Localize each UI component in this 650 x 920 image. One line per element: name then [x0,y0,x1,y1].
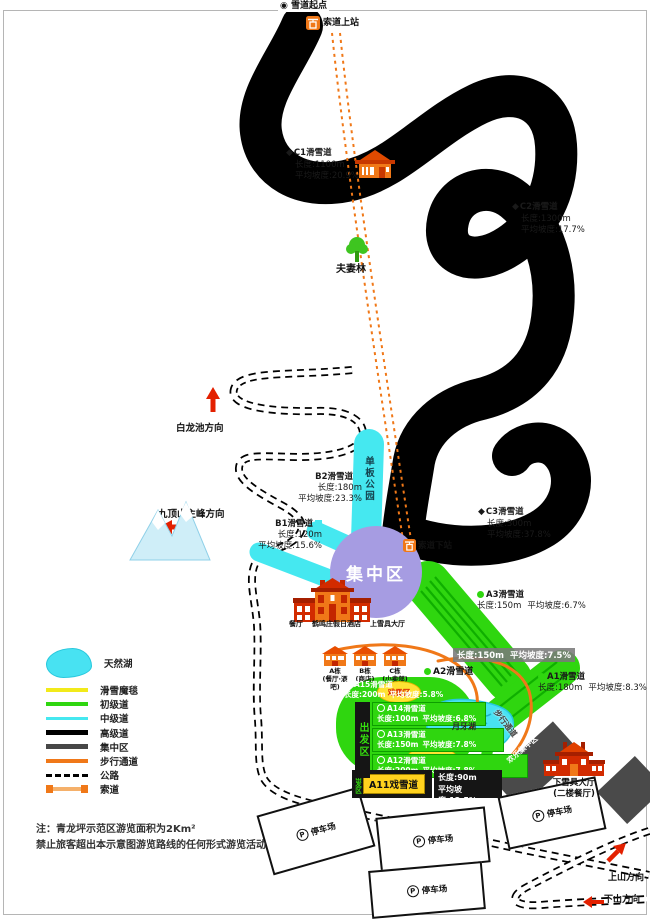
hub-swatch-icon [46,744,88,749]
legend-row: 初级道 [46,700,138,708]
arrow-up-icon [206,387,220,412]
hotel-label: 鹤鸣庄假日酒店 [312,619,361,629]
legend-row: 公路 [46,771,138,779]
departure-zone-bar: 出发区 [355,702,370,778]
legend-lake-row: 天然湖 [46,648,138,678]
intermediate-swatch-icon [46,717,88,721]
hotel-building-icon [293,576,371,622]
beginner-swatch-icon [46,702,88,706]
ropeway-swatch-icon [46,787,88,791]
parking-p-icon: P [295,828,310,843]
trail-a2-label: A2滑雪道 [424,667,473,678]
restaurant-label: 餐厅 [289,619,303,629]
lower-gear-hall-icon [543,740,605,778]
diamond-marker-icon: ◆ [478,507,485,517]
couple-forest-label: 夫妻林 [336,264,366,277]
legend-row: 中级道 [46,714,138,722]
legend-row: 步行通道 [46,757,138,765]
magic-carpet-swatch-icon [46,688,88,692]
lake-swatch-icon [46,648,92,678]
ring-marker-icon [377,730,385,738]
ring-marker-icon [377,704,385,712]
trail-a11-info-box: 长度:90m 平均坡度:12.5% [434,770,502,798]
trail-b2-label: B2滑雪道 长度:180m 平均坡度:23.3% [296,472,362,505]
advanced-swatch-icon [46,730,88,735]
ropeway-top-label: 索道上站 [323,18,359,29]
trail-a11-name-bar: A11戏雪道 [363,774,425,794]
walkway-swatch-icon [46,759,88,763]
legend-row: 滑雪魔毯 [46,686,138,694]
parking-p-icon: P [412,835,425,848]
map-notes: 注：青龙坪示范区游览面积为2Km² 禁止旅客超出本示意图游览路线的任何形式游览活… [36,822,266,853]
start-dot-icon: ◉ [280,1,291,11]
trail-a3-label: A3滑雪道 长度:150m平均坡度:6.7% [477,590,586,612]
legend-row: 集中区 [46,743,138,751]
mountain-icon [128,492,212,562]
parking-p-icon: P [531,809,545,823]
parking-p-icon: P [406,885,419,898]
block-c-house-icon [382,646,408,666]
ring-marker-icon [344,680,352,688]
mountain-house-icon [355,148,395,180]
right-hub-band [612,772,650,808]
green-dot-marker-icon [538,673,545,680]
downhill-label: 下山方向 [604,895,640,906]
green-dot-marker-icon [477,591,484,598]
block-a-house-icon [322,646,348,666]
upper-gear-hall-label: 上雪具大厅 [370,619,405,629]
crescent-lake-label: 月牙湖 [452,722,476,732]
advanced-trail [260,26,571,546]
ring-marker-icon [377,756,385,764]
snowboard-park-label: 单板公园 [361,456,375,502]
map-legend: 天然湖 滑雪魔毯 初级道 中级道 高级道 集中区 步行通道 公路 [46,648,138,800]
tree-icon [346,236,368,264]
cyan-square-marker-icon [315,520,322,527]
diamond-marker-icon: ◆ [286,148,293,158]
lower-gear-hall-label: 下雪具大厅 (二楼餐厅) [541,778,607,799]
trail-a13-bar: A13滑雪道 长度:150m平均坡度:7.8% [372,728,504,752]
map-canvas: ◉ 雪道起点 索道上站 ◆C1滑雪道 长度:1100m 平均坡度:20.9% ◆… [0,0,650,920]
trail-b1-label: B1滑雪道 长度:120m 平均坡度:15.6% [256,519,322,552]
uphill-label: 上山方向 [608,873,644,884]
ropeway-bottom-station-icon [403,539,416,552]
trail-c1-label: ◆C1滑雪道 长度:1100m 平均坡度:20.9% [286,148,359,182]
diamond-marker-icon: ◆ [512,202,519,212]
hotel-labels: 餐厅 鹤鸣庄假日酒店 上雪具大厅 [289,619,405,629]
legend-row: 高级道 [46,729,138,737]
ropeway-top-station-icon [306,16,320,30]
parking-lot-4: P停车场 [368,861,486,919]
road-swatch-icon [46,774,88,777]
block-b-house-icon [352,646,378,666]
white-dragon-direction-label: 白龙池方向 [176,423,224,435]
legend-row: 索道 [46,785,138,793]
trail-c3-label: ◆C3滑雪道 长度:300m 平均坡度:37.8% [478,507,551,541]
green-dot-marker-icon [424,668,431,675]
ropeway-bottom-label: 索道下站 [418,541,452,552]
trail-a15-label: A15滑雪道 长度:200m平均坡度:5.8% [344,680,443,700]
trail-a2-info-box: 长度:150m平均坡度:7.5% [453,648,575,662]
trail-a1-label: A1滑雪道 长度:180m平均坡度:8.3% [538,672,647,694]
trail-c2-label: ◆C2滑雪道 长度:1300m 平均坡度:17.7% [512,202,585,236]
trail-start-label: ◉ 雪道起点 [278,1,329,12]
